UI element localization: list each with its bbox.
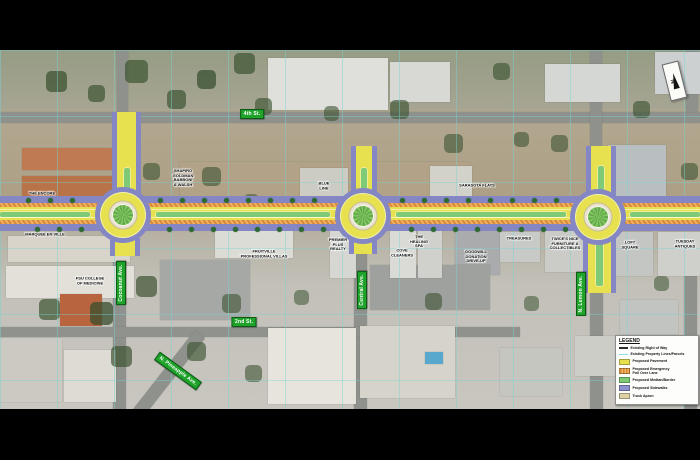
tree-icon	[321, 227, 326, 232]
tree-icon	[444, 198, 449, 203]
tree-icon	[255, 227, 260, 232]
roundabout-center-island	[588, 207, 608, 227]
legend-item: Proposed Sidewalks	[619, 385, 695, 391]
road-pineapple	[124, 330, 205, 409]
legend-item: Proposed Emergency Pull Over Lane	[619, 367, 695, 376]
pool	[425, 352, 443, 364]
tree-icon	[70, 198, 75, 203]
tree-icon	[277, 227, 282, 232]
tree-icon	[158, 198, 163, 203]
legend-swatch-median	[619, 377, 630, 383]
median-strip	[396, 212, 566, 217]
building-block	[268, 58, 388, 110]
place-label: COVE CLEANERS	[391, 248, 413, 257]
place-label: BLUE LINE	[319, 181, 330, 190]
legend-item: Proposed Median/Border	[619, 377, 695, 383]
tree-icon	[299, 227, 304, 232]
building-block	[0, 338, 62, 402]
roundabout-center-island	[353, 206, 373, 226]
legend-label: Proposed Sidewalks	[633, 386, 668, 390]
median-strip	[156, 212, 330, 217]
roundabout-center-island	[113, 205, 133, 225]
place-label: PREMIER PLUS REALTY	[329, 238, 347, 252]
legend-title: LEGEND	[619, 338, 695, 344]
tree-icon	[475, 227, 480, 232]
tree-icon	[26, 198, 31, 203]
tree-icon	[290, 198, 295, 203]
legend-label: Truck Apron	[633, 394, 654, 398]
tree-icon	[488, 198, 493, 203]
place-label: TWICE'S NICE FURNITURE & COLLECTIBLES	[550, 237, 581, 251]
tree-icon	[466, 198, 471, 203]
street-name-label: Cocoanut Ave.	[116, 261, 126, 305]
place-label: THE ENCORE	[29, 192, 55, 197]
place-label: LOFT SQUARE	[621, 240, 638, 249]
building-block	[60, 294, 102, 326]
place-label: FRUITVILLE PROFESSIONAL VILLAS	[241, 249, 288, 258]
building-block	[22, 148, 112, 170]
tree-icon	[497, 227, 502, 232]
tree-icon	[246, 198, 251, 203]
letterbox-bar-top	[0, 0, 700, 50]
legend-label: Existing Property Lines/Parcels	[631, 352, 685, 356]
legend-swatch-sidewalks	[619, 385, 630, 391]
map-legend: LEGEND Existing Right of WayExisting Pro…	[615, 335, 699, 405]
street-name-label: 2nd St.	[231, 317, 256, 327]
building-block	[430, 166, 472, 196]
tree-icon	[563, 227, 568, 232]
legend-label: Proposed Emergency Pull Over Lane	[633, 367, 670, 376]
building-block	[390, 62, 450, 102]
building-block	[268, 328, 356, 404]
place-label: TUESDAY ANTIQUES	[675, 239, 696, 248]
tree-icon	[79, 227, 84, 232]
tree-icon	[532, 198, 537, 203]
street-name-label: N. Lemon Ave.	[576, 272, 586, 316]
tree-icon	[211, 227, 216, 232]
place-label: SHAPIRO GOLDMAN BABBONI & WALSH	[173, 169, 194, 187]
building-block	[500, 348, 562, 396]
legend-label: Existing Right of Way	[631, 346, 668, 350]
tree-icon	[224, 198, 229, 203]
median-strip	[630, 212, 700, 217]
tree-icon	[400, 198, 405, 203]
legend-label: Proposed Pavement	[633, 359, 668, 363]
parking-lot	[160, 260, 250, 320]
tree-icon	[268, 198, 273, 203]
tree-icon	[180, 198, 185, 203]
letterbox-bar-bottom	[0, 409, 700, 460]
legend-label: Proposed Median/Border	[633, 378, 676, 382]
tree-icon	[167, 227, 172, 232]
building-block	[608, 145, 666, 197]
place-label: GOODWILL DONATION DRIVE-UP	[465, 250, 487, 264]
legend-swatch-right-of-way	[619, 347, 628, 349]
tree-icon	[409, 227, 414, 232]
building-block	[545, 64, 620, 102]
tree-icon	[510, 198, 515, 203]
tree-icon	[422, 198, 427, 203]
legend-item: Proposed Pavement	[619, 359, 695, 365]
street-name-label: Central Ave.	[357, 271, 367, 309]
roundabout-plan-screenshot: N LEGEND Existing Right of WayExisting P…	[0, 0, 700, 460]
legend-item: Existing Property Lines/Parcels	[619, 352, 695, 356]
legend-swatch-pavement	[619, 359, 630, 365]
building-block	[620, 300, 678, 334]
median-strip	[596, 242, 603, 286]
place-label: TREASURES	[507, 237, 532, 242]
place-label: THE HEALING SPA	[410, 235, 428, 249]
legend-swatch-property-lines	[619, 354, 628, 356]
place-label: SARASOTA FLATS	[459, 184, 495, 189]
street-name-label: 4th St.	[240, 109, 264, 119]
tree-icon	[48, 198, 53, 203]
place-label: FSU COLLEGE OF MEDICINE	[76, 276, 104, 285]
aerial-map: N LEGEND Existing Right of WayExisting P…	[0, 50, 700, 409]
legend-item: Existing Right of Way	[619, 346, 695, 350]
tree-icon	[189, 227, 194, 232]
tree-icon	[202, 198, 207, 203]
tree-icon	[233, 227, 238, 232]
legend-item: Truck Apron	[619, 393, 695, 399]
tree-icon	[519, 227, 524, 232]
legend-swatch-emergency-lane	[619, 368, 630, 374]
tree-icon	[431, 227, 436, 232]
tree-icon	[453, 227, 458, 232]
building-block	[64, 350, 116, 402]
legend-items: Existing Right of WayExisting Property L…	[619, 346, 695, 399]
median-strip	[0, 212, 90, 217]
tree-icon	[541, 227, 546, 232]
place-label: MARQUEE EN VILLE	[25, 233, 65, 238]
tree-icon	[554, 198, 559, 203]
road	[117, 50, 128, 112]
legend-swatch-truck-apron	[619, 393, 630, 399]
tree-clusters	[0, 50, 3, 53]
tree-icon	[312, 198, 317, 203]
